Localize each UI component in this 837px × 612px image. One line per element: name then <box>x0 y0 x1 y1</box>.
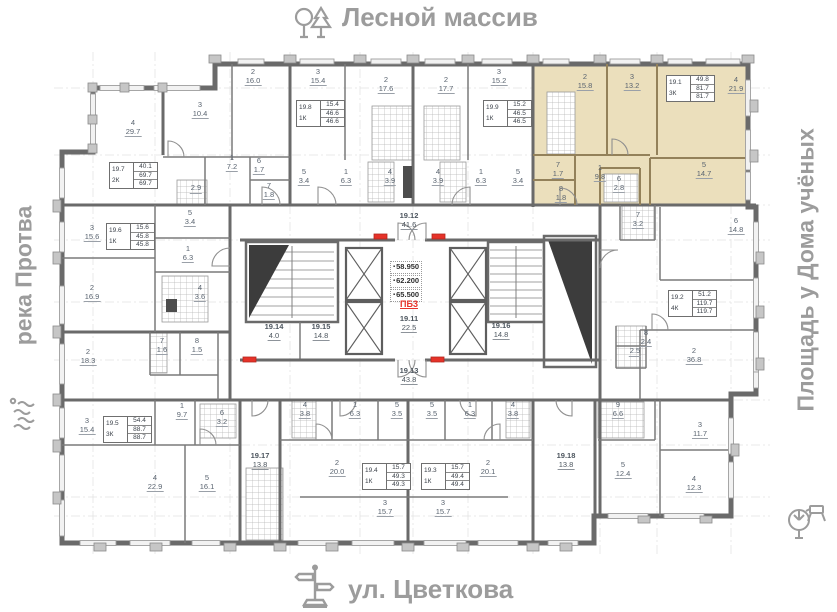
room-label: 81.5 <box>191 337 203 355</box>
apartment-id: 19.4 <box>365 467 384 475</box>
room-label: 236.8 <box>686 347 703 365</box>
apartment-area-value: 49.3 <box>387 481 410 489</box>
apartment-info-table-19.7[interactable]: 19.72К40.169.769.7 <box>109 162 158 189</box>
room-label: 53.5 <box>391 401 403 419</box>
apartment-info-table-19.3[interactable]: 19.31К15.749.449.4 <box>421 463 470 490</box>
floor-plan-page: Лесной массив река Протва Площадь у Дома… <box>0 0 837 612</box>
apartment-area-value: 15.7 <box>387 464 410 473</box>
apartment-area-value: 45.8 <box>131 241 154 249</box>
river-waves-icon <box>8 396 40 437</box>
room-label: 217.7 <box>438 76 455 94</box>
common-zone-label-19.13: 19.1343.8 <box>400 366 419 385</box>
apartment-area-value: 46.6 <box>321 118 344 126</box>
apartment-area-value: 49.3 <box>387 473 410 482</box>
apartment-id: 19.2 <box>671 294 690 302</box>
room-label: 71.7 <box>552 161 564 179</box>
common-zone-label-19.16: 19.1614.8 <box>492 321 511 340</box>
floor-elevation-marks: 58.950 62.200 65.500 <box>390 261 422 303</box>
room-label: 512.4 <box>615 461 632 479</box>
apartment-area-value: 88.7 <box>128 426 151 435</box>
apartment-info-table-19.6[interactable]: 19.61К15.645.845.8 <box>106 223 155 250</box>
apartment-area-value: 88.7 <box>128 434 151 442</box>
room-label: 53.4 <box>184 209 196 227</box>
room-label: 218.3 <box>80 348 97 366</box>
room-label: 313.2 <box>624 73 641 91</box>
apartment-info-table-19.9[interactable]: 19.91К15.246.546.5 <box>483 100 532 127</box>
apartment-area-value: 49.8 <box>691 76 714 85</box>
room-label: 16.3 <box>340 168 352 186</box>
apartment-area-value: 81.7 <box>691 93 714 101</box>
room-label: 220.0 <box>329 459 346 477</box>
room-label: 43.8 <box>299 401 311 419</box>
apartment-type: 1К <box>365 478 384 486</box>
apartment-area-value: 119.7 <box>693 300 716 309</box>
room-label: 53.4 <box>512 168 524 186</box>
room-label: 315.7 <box>377 499 394 517</box>
apartment-area-value: 49.4 <box>446 473 469 482</box>
area-label-top: Лесной массив <box>342 2 538 33</box>
apartment-area-value: 15.6 <box>131 224 154 233</box>
apartment-area-value: 45.8 <box>131 233 154 242</box>
apartment-id: 19.7 <box>112 166 131 174</box>
apartment-area-value: 51.2 <box>693 291 716 300</box>
apartment-type: 4К <box>671 305 690 313</box>
room-label: 53.5 <box>426 401 438 419</box>
room-label: 2.9 <box>190 184 202 194</box>
apartment-id: 19.1 <box>669 79 688 87</box>
room-label: 96.6 <box>612 401 624 419</box>
apartment-type: 2К <box>112 177 131 185</box>
area-label-right: Площадь у Дома учёных <box>793 132 820 412</box>
room-label: 63.2 <box>216 409 228 427</box>
room-label: 216.9 <box>84 284 101 302</box>
fire-safe-zone-label: ПБ3 <box>400 299 418 309</box>
apartment-type: 1К <box>109 238 128 246</box>
common-zone-label-19.17: 19.1713.8 <box>251 451 270 470</box>
apartment-info-table-19.8[interactable]: 19.81К15.446.646.6 <box>296 100 345 127</box>
apartment-area-value: 46.5 <box>508 110 531 119</box>
room-label: 614.8 <box>728 217 745 235</box>
room-label: 311.7 <box>692 421 708 439</box>
room-label: 315.6 <box>84 224 101 242</box>
room-label: 43.6 <box>194 284 206 302</box>
room-label: 62.8 <box>613 175 625 193</box>
room-label: 315.4 <box>310 68 327 86</box>
apartment-info-table-19.2[interactable]: 19.24К51.2119.7119.7 <box>668 290 717 317</box>
common-zone-label-19.11: 19.1122.5 <box>400 314 418 333</box>
room-label: 315.4 <box>79 417 96 435</box>
apartment-area-value: 40.1 <box>134 163 157 172</box>
room-label: 53.4 <box>298 168 310 186</box>
room-label: 16.3 <box>349 401 361 419</box>
room-label: 514.7 <box>696 161 713 179</box>
room-label: 216.0 <box>245 68 262 86</box>
common-zone-label-19.15: 19.1514.8 <box>312 322 331 341</box>
apartment-type: 1К <box>299 115 318 123</box>
trees-icon <box>292 4 334 45</box>
apartment-id: 19.8 <box>299 104 318 112</box>
apartment-area-value: 15.2 <box>508 101 531 110</box>
room-label: 71.6 <box>156 337 168 355</box>
common-zone-label-19.14: 19.144.0 <box>265 322 284 341</box>
room-label: 43.9 <box>384 168 396 186</box>
apartment-info-table-19.5[interactable]: 19.53К54.488.788.7 <box>103 416 152 443</box>
room-label: 422.9 <box>147 474 164 492</box>
street-label-bottom: ул. Цветкова <box>348 574 513 605</box>
park-bench-icon <box>786 496 826 545</box>
apartment-type: 1К <box>424 478 443 486</box>
room-label: 315.2 <box>491 68 508 86</box>
common-zone-label-19.18: 19.1813.8 <box>557 451 576 470</box>
common-zone-label-19.12: 19.1241.6 <box>400 211 419 230</box>
room-label: 17.2 <box>226 154 238 172</box>
room-label: 82.4 <box>640 329 652 347</box>
apartment-info-table-19.1[interactable]: 19.13К49.881.781.7 <box>666 75 715 102</box>
room-label: 19.8 <box>594 164 606 182</box>
apartment-area-value: 69.7 <box>134 172 157 181</box>
apartment-area-value: 46.5 <box>508 118 531 126</box>
apartment-area-value: 69.7 <box>134 180 157 188</box>
street-sign-icon <box>293 564 337 612</box>
room-label: 71.8 <box>263 182 275 200</box>
room-label: 16.3 <box>464 401 476 419</box>
room-label: 81.8 <box>555 185 567 203</box>
room-label: 43.9 <box>432 168 444 186</box>
apartment-type: 3К <box>669 90 688 98</box>
apartment-area-value: 15.4 <box>321 101 344 110</box>
room-label: 215.8 <box>577 73 594 91</box>
area-label-left: река Протва <box>11 201 38 351</box>
room-label: 61.7 <box>253 157 265 175</box>
room-label: 220.1 <box>480 459 497 477</box>
room-label: 73.2 <box>632 211 644 229</box>
room-label: 516.1 <box>199 474 216 492</box>
apartment-area-value: 81.7 <box>691 85 714 94</box>
apartment-id: 19.6 <box>109 227 128 235</box>
apartment-id: 19.3 <box>424 467 443 475</box>
apartment-type: 3К <box>106 431 125 439</box>
room-label: 43.8 <box>507 401 519 419</box>
apartment-area-value: 15.7 <box>446 464 469 473</box>
room-label: 429.7 <box>125 119 142 137</box>
room-label: 16.3 <box>475 168 487 186</box>
apartment-type: 1К <box>486 115 505 123</box>
room-label: 217.6 <box>378 76 395 94</box>
room-label: 2.5 <box>629 347 641 357</box>
apartment-area-value: 49.4 <box>446 481 469 489</box>
apartment-id: 19.9 <box>486 104 505 112</box>
room-label: 19.7 <box>176 402 188 420</box>
room-label: 310.4 <box>192 101 209 119</box>
apartment-area-value: 119.7 <box>693 308 716 316</box>
apartment-area-value: 46.6 <box>321 110 344 119</box>
apartment-id: 19.5 <box>106 420 125 428</box>
room-label: 315.7 <box>435 499 452 517</box>
room-label: 412.3 <box>686 475 703 493</box>
room-label: 16.3 <box>182 245 194 263</box>
apartment-area-value: 54.4 <box>128 417 151 426</box>
apartment-info-table-19.4[interactable]: 19.41К15.749.349.3 <box>362 463 411 490</box>
room-label: 421.9 <box>728 76 745 94</box>
